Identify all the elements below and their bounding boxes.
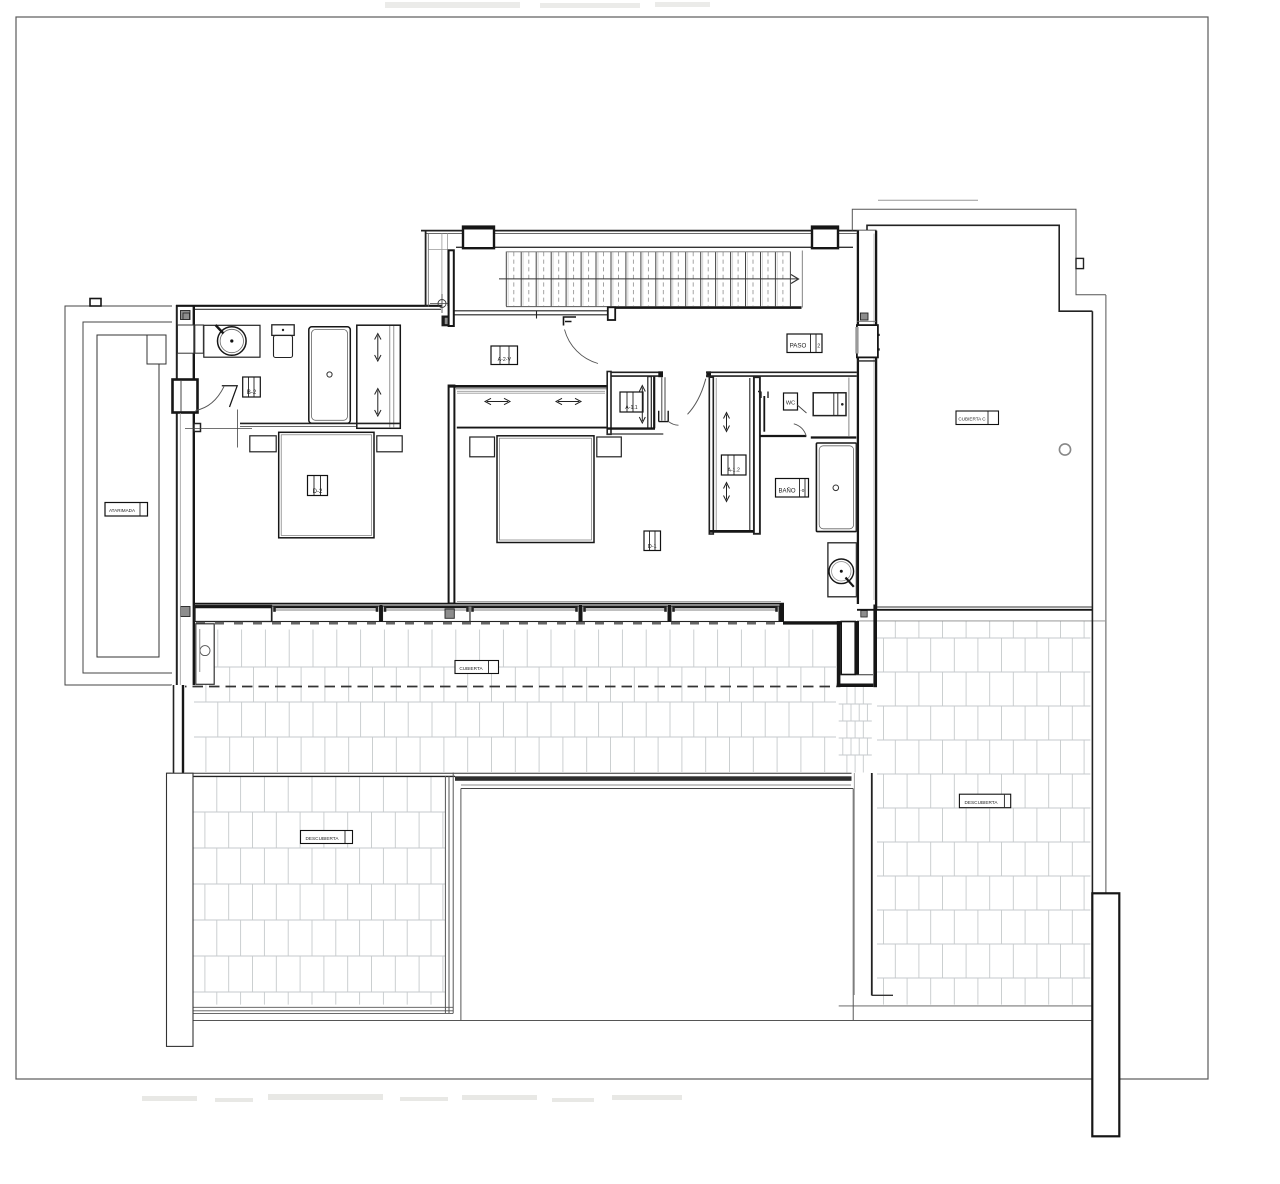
svg-text:D-2: D-2 [313,489,323,495]
svg-text:A-1.1: A-1.1 [625,405,638,411]
svg-text:ATARIMADA: ATARIMADA [109,508,136,513]
svg-text:A-2-V: A-2-V [498,357,512,363]
svg-text:WC: WC [786,401,795,407]
svg-text:D-1: D-1 [648,544,657,550]
svg-text:B-2: B-2 [247,390,257,396]
svg-text:A-1.2: A-1.2 [727,468,740,474]
svg-text:CUBIERTA: CUBIERTA [459,666,483,671]
svg-text:CUBIERTA C: CUBIERTA C [958,417,986,422]
svg-text:BAÑO: BAÑO [778,488,795,495]
svg-text:2: 2 [817,344,820,350]
svg-text:-0: -0 [800,488,805,493]
svg-text:PASO: PASO [790,343,807,350]
svg-text:DESCUBIERTA: DESCUBIERTA [965,800,999,805]
svg-text:DESCUBIERTA: DESCUBIERTA [306,836,340,841]
